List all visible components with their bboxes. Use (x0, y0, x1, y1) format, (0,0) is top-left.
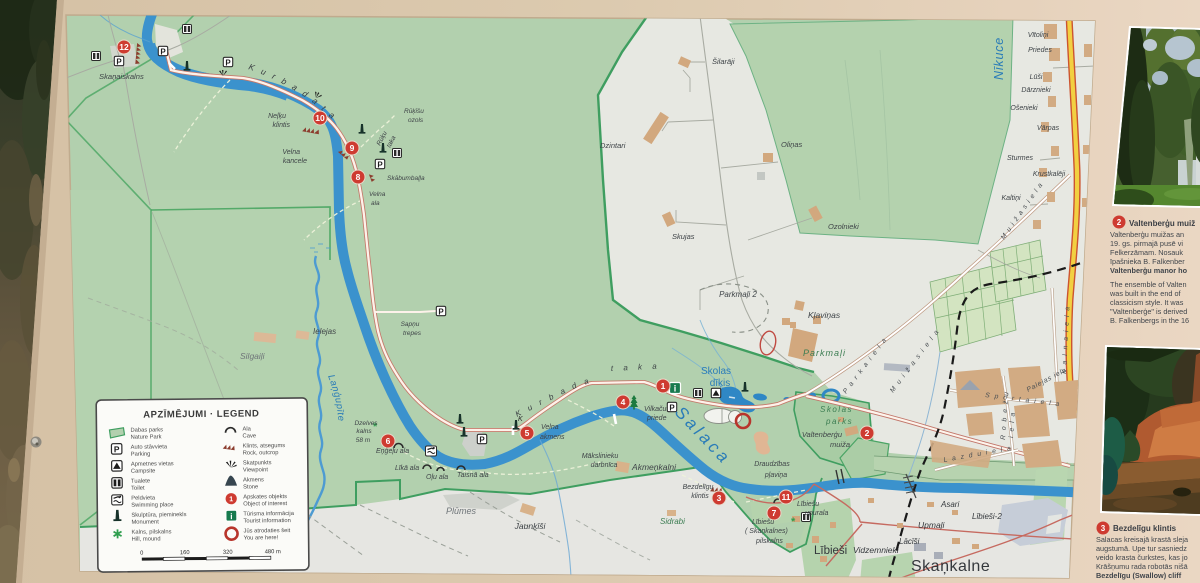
svg-text:akmens: akmens (540, 434, 565, 441)
svg-text:1: 1 (229, 496, 233, 503)
svg-text:pļaviņa: pļaviņa (764, 472, 787, 479)
svg-text:Bezdelīgu: Bezdelīgu (683, 484, 714, 491)
svg-text:Silgaiļi: Silgaiļi (240, 351, 266, 361)
svg-text:Nature Park: Nature Park (131, 434, 162, 440)
svg-text:Vidzemnieki: Vidzemnieki (853, 545, 900, 555)
svg-text:Lācīši: Lācīši (899, 537, 920, 546)
svg-text:Apskates objekts: Apskates objekts (243, 494, 287, 500)
svg-text:Klints, atsegums: Klints, atsegums (243, 443, 286, 449)
svg-text:Oliņas: Oliņas (781, 140, 803, 149)
svg-text:Rock, outcrop: Rock, outcrop (243, 450, 279, 456)
svg-text:Nīkuce: Nīkuce (992, 37, 1006, 80)
svg-text:Dzelves: Dzelves (354, 420, 378, 427)
svg-text:Apmetnes vietas: Apmetnes vietas (131, 461, 174, 467)
svg-text:Hill, mound: Hill, mound (132, 536, 161, 542)
svg-text:Lībiešu: Lībiešu (752, 519, 774, 526)
svg-text:Kalns, pilskalns: Kalns, pilskalns (132, 529, 172, 535)
svg-text:priede: priede (646, 415, 667, 422)
svg-text:Velna: Velna (282, 149, 300, 156)
svg-text:was built in the end of: was built in the end of (1109, 289, 1182, 298)
svg-text:Taisnā ala: Taisnā ala (457, 472, 489, 479)
svg-text:*: * (791, 516, 796, 528)
svg-text:7: 7 (772, 508, 777, 518)
svg-text:Velna: Velna (369, 191, 386, 198)
svg-text:Šilarāji: Šilarāji (712, 57, 735, 66)
svg-text:Dārznieki: Dārznieki (1021, 87, 1051, 94)
svg-text:ozols: ozols (408, 117, 424, 124)
svg-text:P: P (669, 403, 675, 412)
svg-text:Bezdelīgu klintis: Bezdelīgu klintis (1113, 524, 1177, 533)
svg-text:Jaunķīši: Jaunķīši (514, 521, 547, 531)
svg-text:0: 0 (140, 551, 143, 557)
svg-text:B. Falkenbergs in the 16: B. Falkenbergs in the 16 (1110, 316, 1189, 325)
svg-text:Eņģeļu ala: Eņģeļu ala (376, 447, 409, 455)
svg-text:Upmaļi: Upmaļi (918, 520, 946, 530)
svg-text:Valtenberģu muižas an: Valtenberģu muižas an (1110, 230, 1184, 239)
svg-text:Skolas: Skolas (701, 366, 731, 377)
svg-text:klintis: klintis (272, 122, 290, 129)
svg-text:Skābumbaļļa: Skābumbaļļa (387, 175, 425, 182)
svg-text:Rūķīšu: Rūķīšu (404, 108, 424, 115)
svg-text:Lūši: Lūši (1030, 74, 1043, 81)
svg-text:Jūs atrodaties šeit: Jūs atrodaties šeit (244, 528, 291, 534)
svg-text:Campsite: Campsite (131, 468, 156, 474)
svg-text:darbnīca: darbnīca (591, 462, 618, 469)
svg-text:Akmeņkalni: Akmeņkalni (631, 462, 677, 472)
svg-text:( Skaņkalnes): ( Skaņkalnes) (745, 528, 788, 535)
svg-text:Ošenieki: Ošenieki (1010, 105, 1038, 112)
svg-text:veido krasta čurkstes, kas jo: veido krasta čurkstes, kas jo (1096, 553, 1188, 562)
svg-text:Cave: Cave (243, 433, 257, 439)
svg-text:Bezdelīgu (Swallow) cliff: Bezdelīgu (Swallow) cliff (1096, 571, 1182, 580)
svg-text:Sapņu: Sapņu (401, 321, 420, 328)
svg-text:Mākslinieku: Mākslinieku (582, 453, 619, 460)
svg-text:19. gs. pirmajā pusē vi: 19. gs. pirmajā pusē vi (1110, 239, 1183, 248)
svg-text:Swimming place: Swimming place (131, 502, 173, 508)
svg-text:Parking: Parking (131, 452, 151, 458)
svg-text:Skaņkalne: Skaņkalne (911, 558, 990, 575)
svg-text:Kļaviņas: Kļaviņas (808, 310, 841, 320)
svg-text:P: P (438, 307, 444, 316)
svg-text:11: 11 (782, 492, 791, 502)
svg-text:Parkmaļi: Parkmaļi (803, 348, 846, 358)
svg-text:Valtenberģu: Valtenberģu (802, 430, 843, 439)
svg-text:Velna: Velna (541, 424, 559, 431)
svg-text:Tualete: Tualete (131, 479, 150, 485)
svg-text:Salacas kreisajā krastā sleja: Salacas kreisajā krastā sleja (1096, 535, 1189, 544)
svg-text:Valtenberģu muiž: Valtenberģu muiž (1129, 219, 1195, 228)
svg-text:Parkmaļi 2: Parkmaļi 2 (719, 290, 757, 299)
svg-text:Tūrisma informācija: Tūrisma informācija (243, 511, 294, 518)
svg-text:classicism style. It was: classicism style. It was (1110, 298, 1184, 307)
svg-text:dīķis: dīķis (710, 378, 731, 389)
svg-text:"Valtenberģe" is derived: "Valtenberģe" is derived (1110, 307, 1187, 316)
svg-text:Priedes: Priedes (1028, 47, 1052, 54)
svg-text:Ielejas: Ielejas (313, 327, 336, 336)
svg-text:Toilet: Toilet (131, 486, 145, 492)
svg-text:Krustkalēji: Krustkalēji (1033, 171, 1066, 178)
svg-text:5: 5 (525, 428, 530, 438)
svg-text:6: 6 (386, 436, 391, 446)
svg-text:Skatpunkts: Skatpunkts (243, 460, 272, 466)
svg-text:P: P (225, 58, 231, 67)
svg-text:Skaņaiskalns: Skaņaiskalns (99, 72, 144, 81)
svg-text:trepes: trepes (403, 330, 422, 337)
svg-text:58 m: 58 m (356, 437, 371, 444)
svg-text:Felkerzāmam. Nosauk: Felkerzāmam. Nosauk (1110, 248, 1183, 257)
svg-text:Skolas: Skolas (820, 405, 853, 414)
svg-text:kalns: kalns (356, 428, 372, 435)
svg-text:Vilkaču: Vilkaču (644, 406, 667, 413)
svg-text:1: 1 (661, 381, 666, 391)
svg-text:Plūmes: Plūmes (446, 506, 477, 516)
svg-text:9: 9 (350, 143, 355, 153)
svg-text:Object of interest: Object of interest (243, 501, 287, 507)
svg-text:3: 3 (717, 493, 722, 503)
svg-text:P: P (116, 57, 122, 66)
svg-text:Kaltiņi: Kaltiņi (1001, 195, 1021, 202)
svg-text:480 m: 480 m (265, 549, 281, 555)
svg-text:Oļu ala: Oļu ala (426, 474, 448, 481)
svg-text:Vītoliņi: Vītoliņi (1028, 32, 1049, 39)
svg-text:Stone: Stone (243, 484, 258, 490)
svg-text:Sturmes: Sturmes (1007, 155, 1034, 162)
svg-text:Ozolnieki: Ozolnieki (828, 222, 859, 231)
svg-text:3: 3 (1101, 524, 1106, 533)
svg-text:Monument: Monument (131, 519, 159, 525)
svg-text:Lībieši-2: Lībieši-2 (972, 512, 1002, 521)
svg-text:You are here!: You are here! (244, 535, 279, 541)
svg-text:12: 12 (119, 42, 129, 52)
svg-text:Tourist information: Tourist information (243, 518, 290, 524)
svg-text:Krāšņumu rada robotās nišā: Krāšņumu rada robotās nišā (1096, 562, 1189, 571)
svg-text:Valtenberģu manor ho: Valtenberģu manor ho (1110, 266, 1188, 275)
svg-text:10: 10 (315, 113, 325, 123)
svg-text:Ala: Ala (242, 426, 251, 432)
svg-text:ala: ala (371, 200, 380, 207)
svg-text:8: 8 (356, 172, 361, 182)
svg-text:P: P (479, 435, 485, 444)
svg-text:Skulptūra, pieminekls: Skulptūra, pieminekls (131, 512, 186, 519)
svg-text:Dabas parks: Dabas parks (130, 427, 163, 433)
svg-text:īpašnieka B. Falkenber: īpašnieka B. Falkenber (1110, 257, 1185, 266)
svg-text:pilskalns: pilskalns (755, 538, 783, 545)
svg-text:320: 320 (223, 550, 233, 556)
svg-text:APZĪMĒJUMI · LEGEND: APZĪMĒJUMI · LEGEND (143, 408, 259, 420)
svg-text:Viewpoint: Viewpoint (243, 467, 268, 473)
svg-text:Vārpas: Vārpas (1037, 125, 1060, 132)
svg-text:Draudzības: Draudzības (754, 461, 790, 468)
svg-text:P: P (114, 444, 120, 454)
svg-text:2: 2 (1117, 218, 1122, 227)
svg-text:Lībiešu: Lībiešu (797, 501, 819, 508)
svg-text:2: 2 (865, 428, 870, 438)
svg-text:Neļķu: Neļķu (268, 113, 286, 120)
svg-text:The ensemble of Valten: The ensemble of Valten (1110, 280, 1187, 289)
svg-text:muiža: muiža (830, 440, 850, 449)
svg-text:Peldvieta: Peldvieta (131, 495, 156, 501)
svg-text:upurala: upurala (805, 510, 828, 517)
svg-text:Lībieši: Lībieši (814, 545, 847, 557)
svg-text:Līkā ala: Līkā ala (395, 465, 419, 472)
svg-text:Sidrabi: Sidrabi (660, 517, 685, 526)
svg-text:kancele: kancele (283, 158, 307, 165)
svg-text:P: P (160, 47, 166, 56)
svg-text:i: i (230, 511, 232, 521)
svg-text:4: 4 (621, 397, 626, 407)
svg-text:Auto stāvvieta: Auto stāvvieta (131, 444, 168, 450)
svg-text:P: P (377, 160, 383, 169)
svg-text:klintis: klintis (691, 493, 709, 500)
svg-text:Dzintari: Dzintari (600, 141, 626, 150)
svg-text:augstumā. Upe tur sasniedz: augstumā. Upe tur sasniedz (1096, 544, 1187, 553)
svg-text:Akmens: Akmens (243, 477, 264, 483)
svg-text:parks: parks (825, 417, 853, 426)
svg-text:Skujas: Skujas (672, 232, 695, 241)
svg-text:Asari: Asari (940, 500, 959, 509)
svg-text:i: i (674, 384, 677, 394)
svg-text:160: 160 (180, 550, 190, 556)
